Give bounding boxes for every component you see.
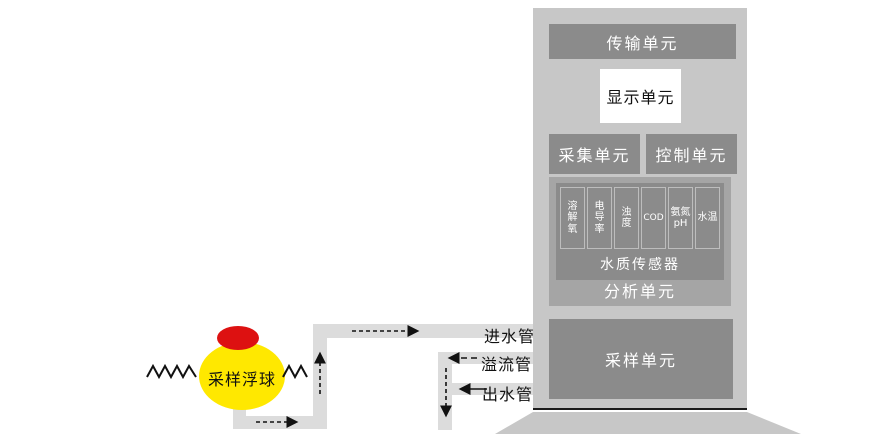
water-quality-sensor-label: 水质传感器 bbox=[560, 249, 720, 278]
analysis-unit-panel: 溶解氧 电导率 浊度 COD 氨氮 pH 水温 水质传感器 分析单元 bbox=[549, 177, 731, 306]
sensor-dissolved-oxygen: 溶解氧 bbox=[560, 187, 585, 249]
transmission-unit: 传输单元 bbox=[549, 24, 736, 59]
sensor-group: 溶解氧 电导率 浊度 COD 氨氮 pH 水温 水质传感器 bbox=[556, 183, 724, 280]
sampling-unit: 采样单元 bbox=[549, 319, 733, 399]
water-wave-left-icon bbox=[147, 366, 196, 377]
diagram-canvas: 进水管 溢流管 出水管 采样浮球 传输单元 显示单元 采集单元 控制单元 溶解氧… bbox=[0, 0, 887, 437]
riser-pipe bbox=[313, 324, 327, 429]
display-unit: 显示单元 bbox=[600, 69, 681, 123]
sensor-ammonia-ph: 氨氮 pH bbox=[668, 187, 693, 249]
tower-base-pedestal bbox=[495, 412, 801, 435]
sensor-turbidity: 浊度 bbox=[614, 187, 639, 249]
collection-unit: 采集单元 bbox=[549, 134, 640, 174]
sensor-cod: COD bbox=[641, 187, 666, 249]
control-unit: 控制单元 bbox=[646, 134, 737, 174]
outlet-pipe-label: 出水管 bbox=[482, 381, 533, 405]
ball-suction-pipe bbox=[233, 416, 325, 429]
sensor-conductivity: 电导率 bbox=[587, 187, 612, 249]
inlet-pipe-label: 进水管 bbox=[484, 323, 535, 347]
float-ball-label: 采样浮球 bbox=[208, 366, 276, 390]
sensor-water-temp: 水温 bbox=[695, 187, 720, 249]
analysis-unit-label: 分析单元 bbox=[549, 278, 731, 302]
water-wave-right-icon bbox=[283, 366, 307, 377]
overflow-pipe-label: 溢流管 bbox=[481, 351, 532, 375]
sensor-row: 溶解氧 电导率 浊度 COD 氨氮 pH 水温 bbox=[560, 187, 720, 249]
float-ball-red-cap bbox=[217, 326, 259, 350]
monitoring-tower: 传输单元 显示单元 采集单元 控制单元 溶解氧 电导率 浊度 COD 氨氮 pH… bbox=[533, 8, 747, 410]
drain-pipe bbox=[438, 352, 452, 430]
